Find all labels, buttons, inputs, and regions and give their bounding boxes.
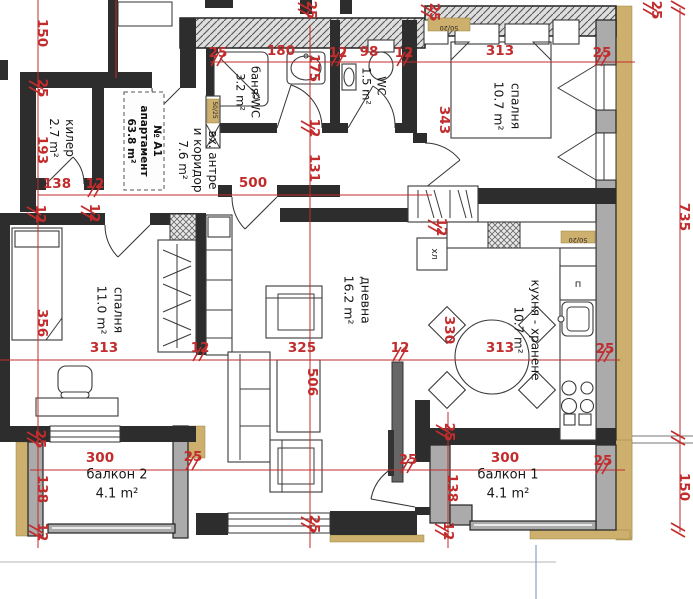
svg-text:25: 25 xyxy=(184,449,203,465)
svg-text:313: 313 xyxy=(486,340,514,356)
svg-text:вх. антреи коридор7.6 m²: вх. антреи коридор7.6 m² xyxy=(176,128,220,193)
svg-text:12: 12 xyxy=(391,340,410,356)
balcony1-railing xyxy=(470,521,596,530)
balcony2-railing xyxy=(48,524,175,533)
svg-text:50/20: 50/20 xyxy=(440,24,459,32)
dimension-735: 735 xyxy=(676,203,692,231)
svg-text:325: 325 xyxy=(288,340,316,356)
dimension-500: 500 xyxy=(239,175,267,191)
bedroom2-door-icon xyxy=(105,225,150,257)
label-spalnia2: спалня11.0 m² xyxy=(95,286,127,335)
svg-text:506: 506 xyxy=(304,368,320,396)
floor-plan-page: № А1 апартамент 63.8 m² xyxy=(0,0,693,599)
dimension-131: 131 xyxy=(306,154,322,182)
svg-text:25: 25 xyxy=(303,1,319,20)
svg-text:500: 500 xyxy=(239,175,267,191)
svg-text:25: 25 xyxy=(594,453,613,469)
dimension-98: 98 xyxy=(360,44,379,60)
label-antre: вх. антреи коридор7.6 m² xyxy=(176,128,220,193)
svg-text:25: 25 xyxy=(306,515,322,534)
kitchen-sink-icon xyxy=(558,302,593,336)
dimension-12: 12 xyxy=(301,119,322,138)
svg-text:50/25: 50/25 xyxy=(211,101,218,118)
svg-text:138: 138 xyxy=(444,474,460,502)
dimension-330: 330 xyxy=(441,316,457,344)
svg-text:50/20: 50/20 xyxy=(569,236,588,244)
svg-text:138: 138 xyxy=(34,475,50,503)
dimension-313: 313 xyxy=(90,340,118,356)
svg-text:150: 150 xyxy=(676,473,692,501)
label-balkon2: балкон 24.1 m² xyxy=(86,468,147,502)
svg-text:хл: хл xyxy=(429,248,439,259)
coat-niche-icon xyxy=(408,186,478,222)
label-kiler: килер2.7 m² xyxy=(47,118,77,158)
svg-text:12: 12 xyxy=(32,205,48,224)
dimension-150: 150 xyxy=(676,473,692,501)
svg-text:25: 25 xyxy=(399,452,418,468)
sofa-icon xyxy=(228,352,270,462)
svg-text:25: 25 xyxy=(426,3,442,22)
svg-text:п: п xyxy=(575,279,582,290)
dimension-313: 313 xyxy=(486,43,514,59)
dimension-12: 12 xyxy=(435,522,456,541)
bedroom2-balcony-window-icon xyxy=(50,426,120,442)
armchair2-icon xyxy=(270,440,322,492)
dimension-175: 175 xyxy=(306,54,322,82)
wc-washbasin-icon xyxy=(342,64,356,90)
svg-text:300: 300 xyxy=(86,450,114,466)
svg-text:килер2.7 m²: килер2.7 m² xyxy=(47,118,77,158)
dimension-300: 300 xyxy=(86,450,114,466)
svg-text:12: 12 xyxy=(86,176,105,192)
hall-cabinet-icon xyxy=(206,215,232,355)
dimension-138: 138 xyxy=(34,475,50,503)
svg-text:25: 25 xyxy=(209,45,228,61)
small-label-п: п xyxy=(575,279,582,290)
dimension-150: 150 xyxy=(34,19,50,47)
dimension-300: 300 xyxy=(491,450,519,466)
svg-text:25: 25 xyxy=(441,423,457,442)
svg-text:313: 313 xyxy=(90,340,118,356)
dimension-506: 506 xyxy=(304,368,320,396)
dimension-180: 180 xyxy=(267,43,295,59)
svg-text:330: 330 xyxy=(441,316,457,344)
desk-icon xyxy=(36,398,118,416)
floor-plan-drawing: № А1 апартамент 63.8 m² xyxy=(0,0,693,599)
dimension-138: 138 xyxy=(444,474,460,502)
small-label-хл: хл xyxy=(429,248,439,259)
armchair-icon xyxy=(266,286,322,338)
svg-text:313: 313 xyxy=(486,43,514,59)
svg-text:98: 98 xyxy=(360,44,379,60)
svg-text:12: 12 xyxy=(191,340,210,356)
label-dnevna: дневна16.2 m² xyxy=(342,276,374,325)
dimension-313: 313 xyxy=(486,340,514,356)
dimension-25: 25 xyxy=(643,1,664,20)
svg-text:25: 25 xyxy=(596,341,615,357)
dimension-325: 325 xyxy=(288,340,316,356)
small-label-50/25: 50/25 xyxy=(211,101,218,118)
living-room-door-icon xyxy=(232,197,277,229)
bedroom1-window2-icon xyxy=(558,133,616,180)
dimension-343: 343 xyxy=(436,106,452,134)
small-label-50/20: 50/20 xyxy=(569,236,588,244)
dimension-tick xyxy=(671,523,685,537)
svg-text:спалня11.0 m²: спалня11.0 m² xyxy=(95,286,127,335)
svg-text:12: 12 xyxy=(306,119,322,138)
label-balkon1: балкон 14.1 m² xyxy=(477,468,538,502)
svg-text:12: 12 xyxy=(395,45,414,61)
svg-text:150: 150 xyxy=(34,19,50,47)
bedroom1-window-icon xyxy=(558,65,616,110)
svg-text:балкон 14.1 m²: балкон 14.1 m² xyxy=(477,468,538,502)
svg-text:175: 175 xyxy=(306,54,322,82)
svg-text:356: 356 xyxy=(34,309,50,337)
small-label-50/20: 50/20 xyxy=(440,24,459,32)
svg-text:25: 25 xyxy=(32,430,48,449)
dimension-12: 12 xyxy=(86,176,105,197)
bedroom1-door-icon xyxy=(425,143,460,188)
svg-text:12: 12 xyxy=(34,523,50,542)
office-chair-icon xyxy=(58,366,92,398)
svg-text:12: 12 xyxy=(433,218,449,237)
dimension-138: 138 xyxy=(43,176,71,192)
svg-text:735: 735 xyxy=(676,203,692,231)
svg-text:25: 25 xyxy=(648,1,664,20)
svg-text:дневна16.2 m²: дневна16.2 m² xyxy=(342,276,374,325)
svg-text:138: 138 xyxy=(43,176,71,192)
svg-text:балкон 24.1 m²: балкон 24.1 m² xyxy=(86,468,147,502)
dimension-356: 356 xyxy=(34,309,50,337)
svg-text:баня-WC3.2 m²: баня-WC3.2 m² xyxy=(234,66,263,118)
label-bania: баня-WC3.2 m² xyxy=(234,66,263,118)
svg-text:12: 12 xyxy=(329,45,348,61)
wardrobe-icon xyxy=(158,214,196,352)
svg-text:180: 180 xyxy=(267,43,295,59)
svg-text:300: 300 xyxy=(491,450,519,466)
svg-text:343: 343 xyxy=(436,106,452,134)
dimension-12: 12 xyxy=(391,340,410,361)
svg-text:12: 12 xyxy=(440,522,456,541)
dimension-12: 12 xyxy=(191,340,210,361)
svg-text:25: 25 xyxy=(34,79,50,98)
svg-text:12: 12 xyxy=(86,204,102,223)
svg-text:25: 25 xyxy=(593,45,612,61)
dimension-tick xyxy=(671,1,685,15)
svg-text:131: 131 xyxy=(306,154,322,182)
